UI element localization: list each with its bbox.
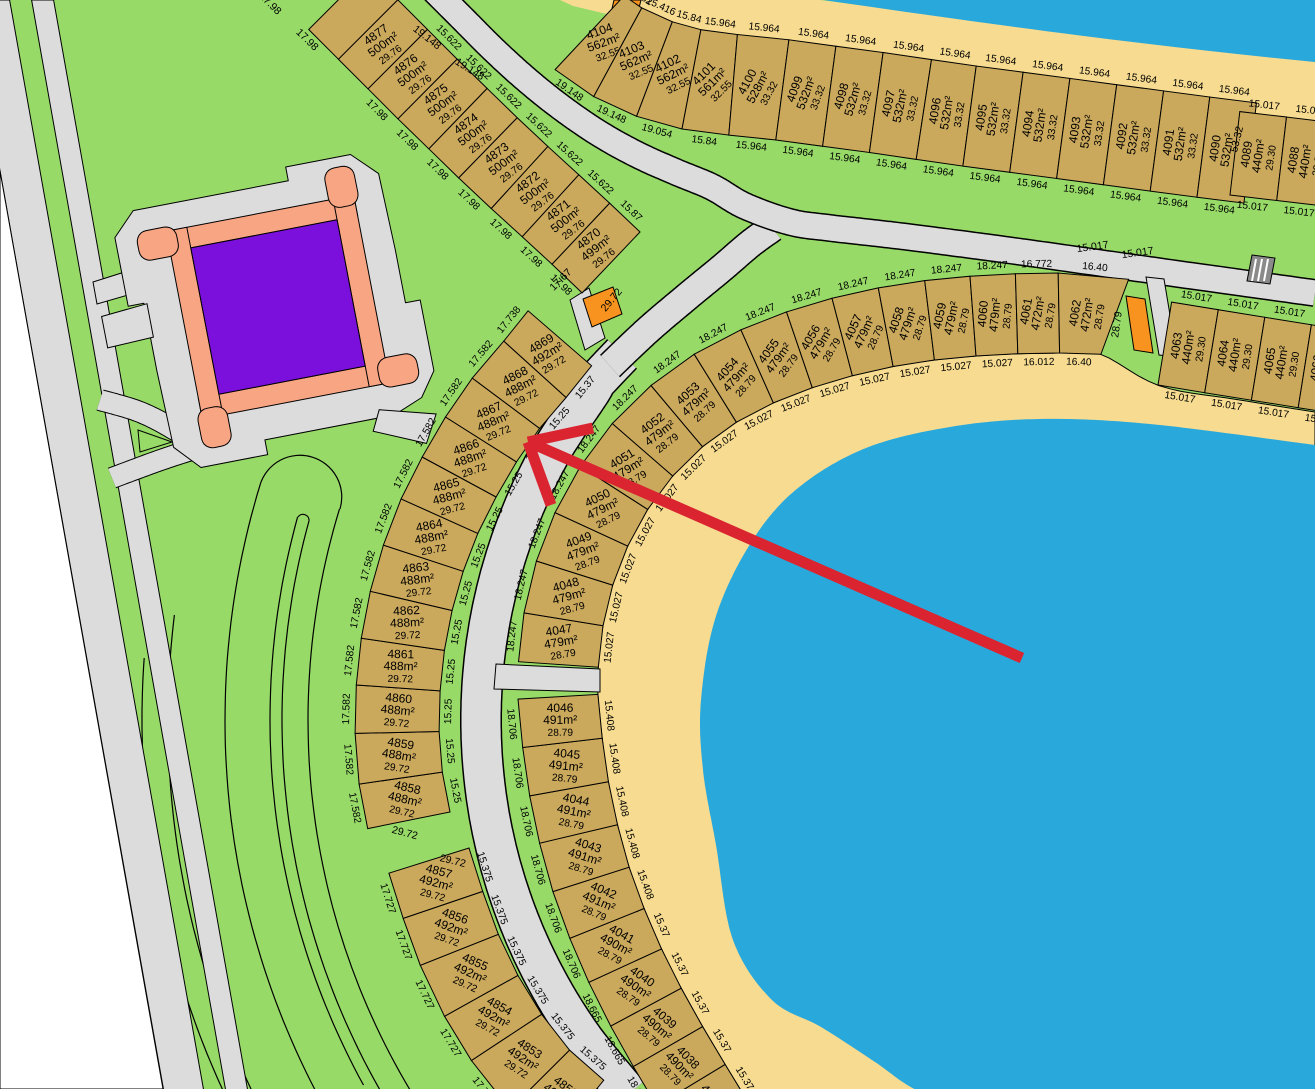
svg-text:491m²: 491m² [543, 713, 577, 727]
svg-text:15.25: 15.25 [443, 738, 456, 765]
svg-text:16.772: 16.772 [1021, 259, 1053, 271]
svg-text:29.72: 29.72 [383, 717, 410, 730]
svg-text:18.247: 18.247 [976, 260, 1008, 273]
svg-text:488m²: 488m² [390, 615, 425, 631]
svg-text:15.027: 15.027 [982, 358, 1014, 371]
svg-text:28.79: 28.79 [1002, 303, 1015, 330]
svg-text:15.25: 15.25 [443, 698, 455, 724]
svg-text:16.40: 16.40 [1066, 357, 1092, 369]
svg-text:16.012: 16.012 [1023, 357, 1055, 369]
svg-text:29.72: 29.72 [395, 630, 421, 642]
svg-text:16.40: 16.40 [1082, 261, 1109, 274]
svg-text:488m²: 488m² [383, 659, 417, 674]
svg-text:28.79: 28.79 [547, 728, 573, 739]
svg-text:17.582: 17.582 [341, 693, 353, 725]
svg-text:29.72: 29.72 [387, 674, 413, 686]
